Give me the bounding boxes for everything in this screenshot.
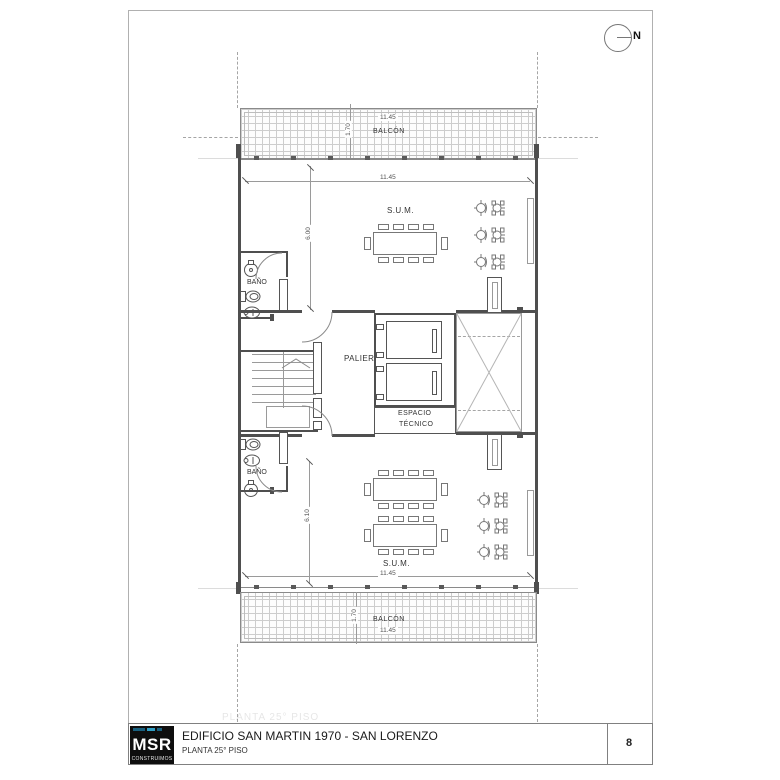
column xyxy=(517,432,523,438)
core-wall xyxy=(332,434,375,437)
office-chairs-icon xyxy=(476,541,510,563)
north-label: N xyxy=(633,30,641,42)
property-line xyxy=(537,644,538,722)
counter xyxy=(527,490,534,556)
elevator-door-jamb xyxy=(376,324,384,330)
bath-bottom-label: BAÑO xyxy=(247,469,267,476)
frame-top xyxy=(128,10,653,11)
balcony-bottom-label: BALCÓN xyxy=(373,616,405,623)
dim-balcony-top-depth: 1.70 xyxy=(345,121,352,138)
extension-line xyxy=(538,158,578,159)
door-arc xyxy=(256,253,282,279)
wall-return xyxy=(236,144,241,158)
pilaster xyxy=(279,432,288,464)
conference-table xyxy=(364,470,448,510)
property-line xyxy=(237,52,238,108)
vent-shaft-line xyxy=(458,336,520,337)
elevator-door-jamb xyxy=(376,394,384,400)
pilaster xyxy=(313,398,322,418)
dim-balcony-bottom-width: 11.45 xyxy=(378,627,398,634)
palier-label: PALIER xyxy=(344,354,374,363)
project-title: EDIFICIO SAN MARTIN 1970 - SAN LORENZO xyxy=(182,729,438,743)
stair-wall xyxy=(240,350,318,352)
dim-sum-bottom-width: 11.45 xyxy=(378,570,398,577)
balcony-top-label: BALCÓN xyxy=(373,128,405,135)
elevator-counterweight xyxy=(432,329,437,353)
office-chairs-icon xyxy=(476,489,510,511)
dim-sum-top-height: 6.00 xyxy=(305,225,312,242)
pilaster xyxy=(279,279,288,311)
elevator-counterweight xyxy=(432,371,437,395)
window-mullions-bottom xyxy=(240,585,535,590)
core-wall xyxy=(240,310,302,313)
door-jamb xyxy=(270,314,274,321)
door-arc xyxy=(302,312,332,342)
sheet-number: 8 xyxy=(626,737,632,749)
elevator-door-jamb xyxy=(376,352,384,358)
property-line xyxy=(537,52,538,108)
office-chairs-icon xyxy=(473,251,507,273)
north-arrow-circle xyxy=(604,24,632,52)
duct xyxy=(487,277,502,313)
core-wall xyxy=(332,310,375,313)
conference-table xyxy=(364,516,448,556)
sink-icon xyxy=(242,260,260,278)
wall-return xyxy=(534,144,539,158)
dim-balcony-top-width: 11.45 xyxy=(378,114,398,121)
axis-line xyxy=(538,137,598,138)
conference-table xyxy=(364,224,448,264)
frame-left xyxy=(128,10,129,765)
logo-text: MSR xyxy=(130,735,174,755)
stair-landing xyxy=(266,406,310,428)
table-top xyxy=(373,232,437,255)
exterior-wall-right xyxy=(535,157,538,593)
bidet-icon xyxy=(240,453,262,468)
axis-line xyxy=(183,137,238,138)
wall xyxy=(286,466,288,492)
extension-line xyxy=(538,588,578,589)
column xyxy=(517,307,523,313)
toilet-icon xyxy=(240,437,262,452)
north-arrow-line xyxy=(617,37,631,38)
tech-space-label-1: ESPACIO xyxy=(398,410,431,417)
elevator-door-jamb xyxy=(376,366,384,372)
sheet-subtitle: PLANTA 25° PISO xyxy=(182,746,248,755)
ghost-text: PLANTA 25° PISO xyxy=(222,712,319,723)
core-wall xyxy=(240,434,302,437)
msr-logo: MSR CONSTRUIMOS xyxy=(130,726,174,764)
pilaster xyxy=(313,421,322,430)
table-top xyxy=(373,524,437,547)
office-chairs-icon xyxy=(476,515,510,537)
sink-icon xyxy=(242,480,260,498)
dim-balcony-bottom-depth: 1.70 xyxy=(351,607,358,624)
wall xyxy=(240,317,270,319)
pilaster xyxy=(313,342,322,394)
office-chairs-icon xyxy=(473,224,507,246)
extension-line xyxy=(198,158,238,159)
counter xyxy=(527,198,534,264)
door-jamb xyxy=(270,487,274,494)
window-mullions-top xyxy=(240,156,535,161)
title-block-divider xyxy=(607,723,608,765)
sum-top-label: S.U.M. xyxy=(387,206,414,215)
office-chairs-icon xyxy=(473,197,507,219)
wall xyxy=(240,251,287,253)
tech-space-label-2: TÉCNICO xyxy=(399,421,433,428)
frame-right xyxy=(652,10,653,765)
exterior-wall-left xyxy=(238,157,241,593)
stairs xyxy=(252,354,316,404)
wall xyxy=(240,490,287,492)
table-top xyxy=(373,478,437,501)
vent-shaft xyxy=(456,313,522,432)
wall xyxy=(286,251,288,277)
dim-sum-top-width: 11.45 xyxy=(378,174,398,181)
vent-shaft-line xyxy=(458,410,520,411)
toilet-icon xyxy=(240,289,262,304)
dim-line xyxy=(245,181,530,182)
stair-divider xyxy=(283,352,284,408)
logo-subtext: CONSTRUIMOS xyxy=(130,756,174,762)
dim-sum-bottom-height: 6.10 xyxy=(304,507,311,524)
duct xyxy=(487,434,502,470)
property-line xyxy=(237,644,238,722)
extension-line xyxy=(198,588,238,589)
drawing-sheet: N 11.45 BALCÓN 1.70 11.45 S.U.M. 6.00 xyxy=(0,0,780,780)
sum-bottom-label: S.U.M. xyxy=(383,559,410,568)
bath-top-label: BAÑO xyxy=(247,279,267,286)
